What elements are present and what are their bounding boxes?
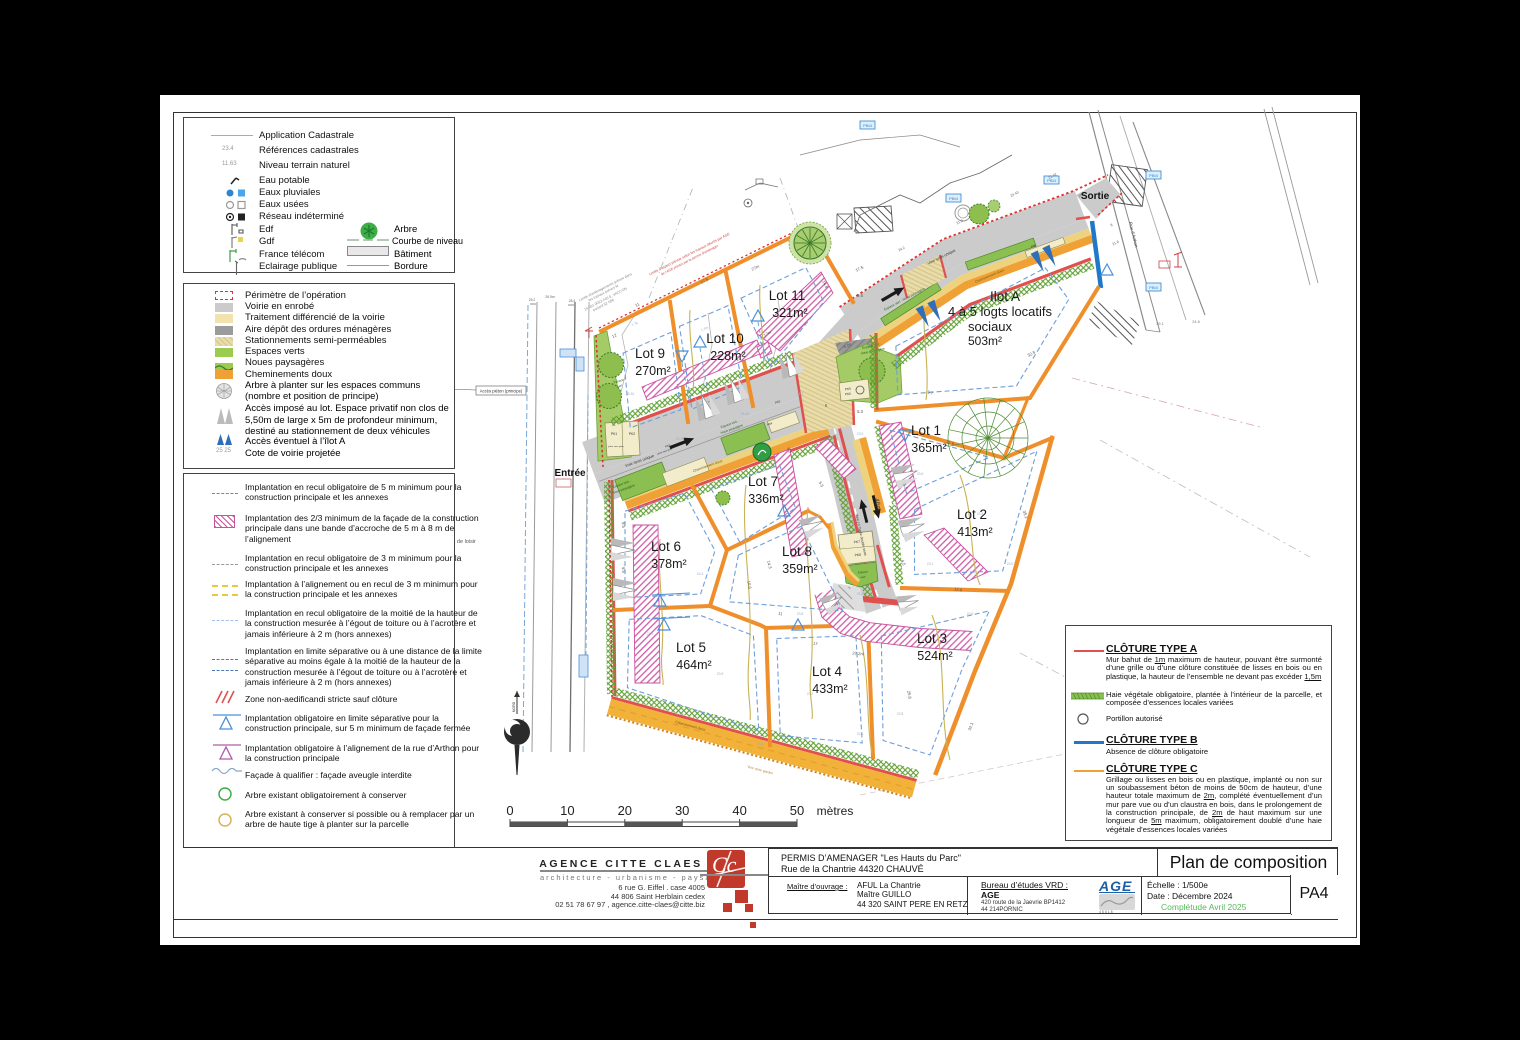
svg-text:Lot 1: Lot 1 <box>911 423 941 438</box>
svg-text:24.2: 24.2 <box>797 392 804 396</box>
svg-text:PK7: PK7 <box>854 540 861 544</box>
svg-text:Rue d'Arthon: Rue d'Arthon <box>1128 221 1139 248</box>
svg-text:Espace: Espace <box>858 570 869 575</box>
svg-text:25.6: 25.6 <box>906 690 912 700</box>
svg-text:25.2: 25.2 <box>529 298 536 302</box>
svg-text:8: 8 <box>1110 223 1114 227</box>
svg-text:30: 30 <box>675 803 689 818</box>
svg-text:Ilot A: Ilot A <box>990 289 1020 304</box>
svg-text:9.5: 9.5 <box>621 522 627 529</box>
svg-text:10: 10 <box>560 803 574 818</box>
svg-text:270m²: 270m² <box>635 364 670 378</box>
svg-text:359m²: 359m² <box>782 562 817 576</box>
svg-text:PK2: PK2 <box>629 432 636 436</box>
svg-text:26.9m: 26.9m <box>545 295 555 299</box>
svg-text:PK8: PK8 <box>855 553 862 557</box>
svg-text:Limite d'aspect prévue selon l: Limite d'aspect prévue selon les travaux… <box>649 232 732 277</box>
svg-text:12: 12 <box>611 332 618 339</box>
svg-text:23.4: 23.4 <box>977 512 984 516</box>
svg-text:23.8: 23.8 <box>797 612 804 616</box>
svg-text:PBI4: PBI4 <box>949 196 958 201</box>
svg-text:5.5: 5.5 <box>818 480 826 488</box>
svg-text:524m²: 524m² <box>917 649 952 663</box>
svg-text:17.5: 17.5 <box>855 264 865 272</box>
svg-text:0: 0 <box>506 803 513 818</box>
svg-text:22.9: 22.9 <box>967 612 974 616</box>
svg-text:PBI4: PBI4 <box>1149 173 1158 178</box>
svg-text:20: 20 <box>618 803 632 818</box>
svg-text:23.4: 23.4 <box>757 742 764 746</box>
svg-text:24.6: 24.6 <box>1192 320 1199 324</box>
svg-text:PK6: PK6 <box>845 392 852 397</box>
svg-text:24.95: 24.95 <box>676 437 685 441</box>
svg-text:21.9: 21.9 <box>956 219 964 226</box>
svg-text:378m²: 378m² <box>651 557 686 571</box>
svg-text:Lot 4: Lot 4 <box>812 664 843 679</box>
svg-text:365m²: 365m² <box>911 441 946 455</box>
svg-text:17: 17 <box>813 641 819 647</box>
svg-text:24.1: 24.1 <box>647 632 654 636</box>
svg-text:23.1: 23.1 <box>927 562 934 566</box>
svg-text:12.6: 12.6 <box>954 586 963 592</box>
svg-text:503m²: 503m² <box>968 334 1002 348</box>
svg-text:Voie verte garden: Voie verte garden <box>747 765 774 776</box>
svg-text:228m²: 228m² <box>710 349 745 363</box>
svg-text:24.3: 24.3 <box>697 572 704 576</box>
svg-text:29.1: 29.1 <box>1156 322 1163 326</box>
svg-text:22.6: 22.6 <box>857 732 864 736</box>
svg-text:Lot 10: Lot 10 <box>706 331 744 346</box>
svg-text:2.5: 2.5 <box>857 293 863 298</box>
svg-text:NORD: NORD <box>512 701 516 712</box>
svg-text:Lot 3: Lot 3 <box>917 631 947 646</box>
svg-text:mètres: mètres <box>817 804 854 818</box>
svg-text:22.8: 22.8 <box>897 712 904 716</box>
svg-text:27.2m: 27.2m <box>852 651 865 657</box>
svg-text:4 à 5 logts locatifs: 4 à 5 logts locatifs <box>948 304 1053 319</box>
svg-text:336m²: 336m² <box>748 492 783 506</box>
svg-text:Entrée: Entrée <box>554 468 586 479</box>
svg-text:23.9: 23.9 <box>717 672 724 676</box>
svg-text:9.5: 9.5 <box>621 567 627 574</box>
svg-text:413m²: 413m² <box>957 525 992 539</box>
svg-text:40: 40 <box>732 803 746 818</box>
svg-text:23.9: 23.9 <box>857 432 864 436</box>
svg-text:27m: 27m <box>751 263 761 271</box>
svg-text:23.9: 23.9 <box>677 712 684 716</box>
svg-text:sociaux: sociaux <box>968 319 1013 334</box>
svg-text:433m²: 433m² <box>812 682 847 696</box>
svg-text:de l'AGE prévus par le permis: de l'AGE prévus par le permis d'aménager <box>660 243 719 276</box>
svg-text:PBI4: PBI4 <box>863 123 872 128</box>
svg-text:Lot 8: Lot 8 <box>782 544 812 559</box>
svg-text:21.6: 21.6 <box>1112 240 1120 247</box>
svg-text:PK5: PK5 <box>845 387 852 392</box>
svg-text:porte sans gène: porte sans gène <box>608 445 624 448</box>
svg-text:Lot 9: Lot 9 <box>635 346 665 361</box>
svg-text:23.2: 23.2 <box>807 692 814 696</box>
svg-text:23.4: 23.4 <box>857 592 864 596</box>
svg-text:Lot 6: Lot 6 <box>651 539 681 554</box>
svg-text:25.10: 25.10 <box>626 392 635 396</box>
svg-text:7.7s: 7.7s <box>631 321 639 328</box>
svg-text:10.6: 10.6 <box>746 580 752 590</box>
svg-text:Accès piéton (principe): Accès piéton (principe) <box>480 389 523 394</box>
svg-text:9.7: 9.7 <box>927 389 935 396</box>
svg-text:Lot 5: Lot 5 <box>676 640 706 655</box>
svg-text:23.0: 23.0 <box>1007 562 1014 566</box>
svg-text:PK1: PK1 <box>611 432 618 436</box>
svg-text:23.6: 23.6 <box>917 472 924 476</box>
svg-text:vert: vert <box>860 575 865 579</box>
svg-text:32.1: 32.1 <box>967 721 975 731</box>
svg-text:24.2: 24.2 <box>898 246 906 253</box>
svg-text:PBI4: PBI4 <box>1149 285 1158 290</box>
svg-text:Lot 7: Lot 7 <box>748 474 778 489</box>
svg-text:50: 50 <box>790 803 804 818</box>
svg-text:14.3: 14.3 <box>766 560 773 570</box>
svg-text:28.4: 28.4 <box>569 299 576 303</box>
svg-text:11: 11 <box>634 301 641 308</box>
svg-text:5.3: 5.3 <box>857 409 863 414</box>
svg-text:32.6: 32.6 <box>1027 349 1037 358</box>
svg-text:Sortie: Sortie <box>1081 191 1110 202</box>
svg-text:321m²: 321m² <box>772 306 807 320</box>
svg-text:464m²: 464m² <box>676 658 711 672</box>
svg-text:24.43: 24.43 <box>1010 190 1020 198</box>
svg-text:24.60: 24.60 <box>741 412 750 416</box>
svg-text:11: 11 <box>778 611 784 617</box>
svg-text:Lot 11: Lot 11 <box>769 288 806 303</box>
